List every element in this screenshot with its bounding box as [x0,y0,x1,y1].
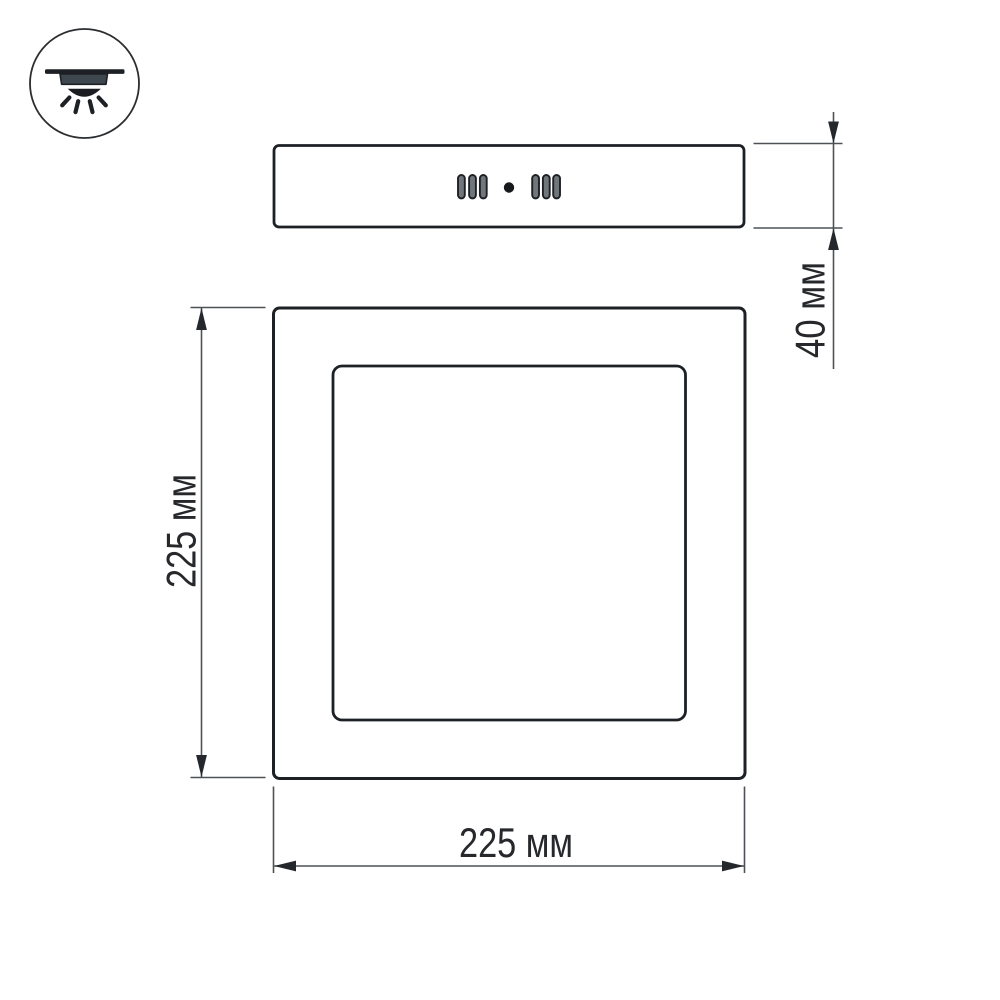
svg-text:225 мм: 225 мм [158,474,205,588]
svg-text:40 мм: 40 мм [787,262,834,358]
svg-text:225 мм: 225 мм [459,819,573,866]
